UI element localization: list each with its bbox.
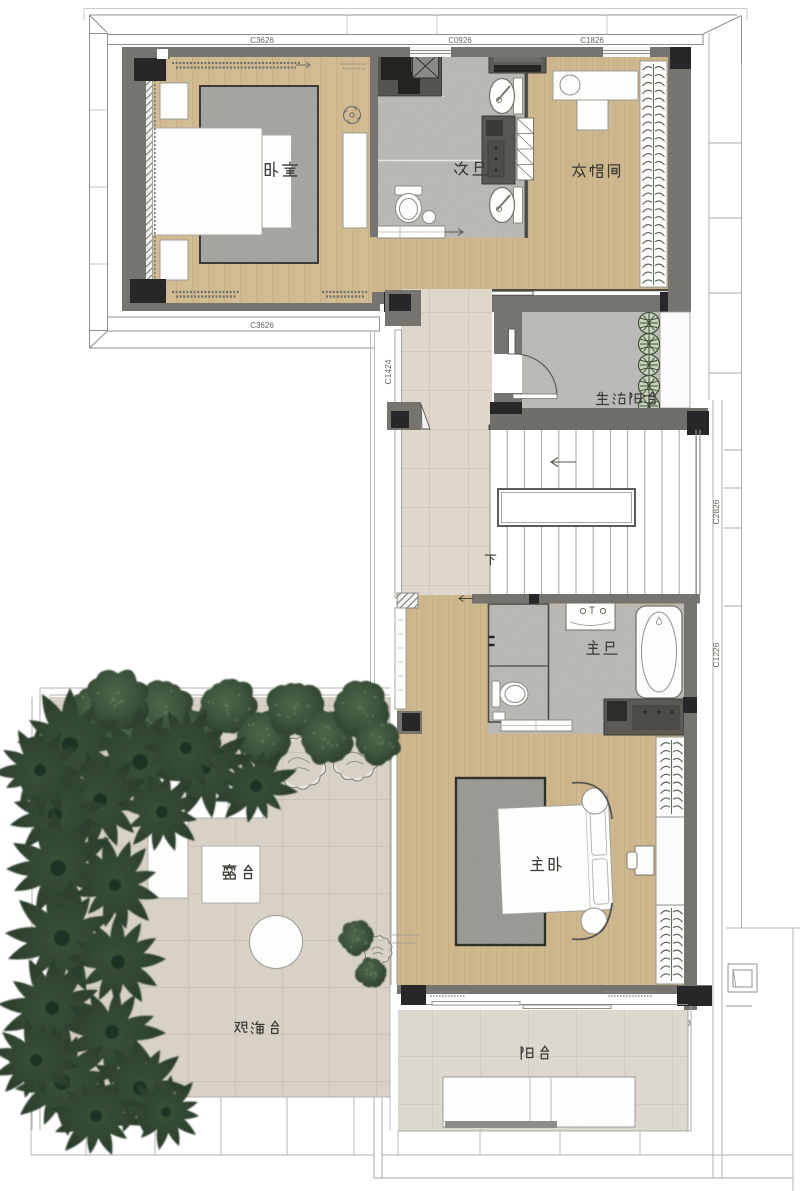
svg-text:C1826: C1826 bbox=[580, 36, 604, 45]
svg-text:C3626: C3626 bbox=[250, 36, 274, 45]
svg-text:C1226: C1226 bbox=[711, 642, 721, 667]
svg-text:C3626: C3626 bbox=[250, 321, 274, 330]
svg-text:C1424: C1424 bbox=[383, 359, 393, 384]
svg-text:C2826: C2826 bbox=[711, 499, 721, 524]
svg-text:C0926: C0926 bbox=[448, 36, 472, 45]
